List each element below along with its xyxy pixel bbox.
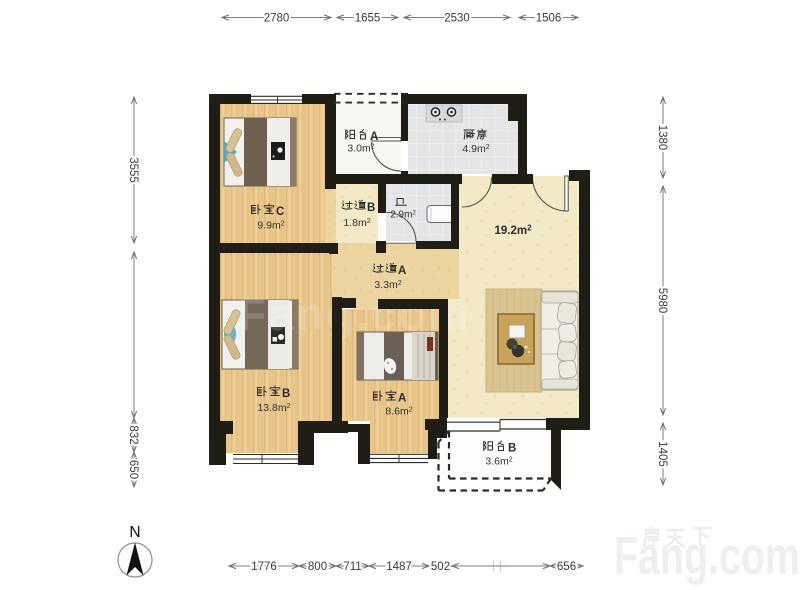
svg-text:2530: 2530 <box>444 12 470 24</box>
svg-text:1380: 1380 <box>656 125 668 151</box>
svg-text:656: 656 <box>557 561 576 573</box>
svg-text:650: 650 <box>127 460 139 479</box>
svg-text:·׀·׀·: ·׀·׀· <box>488 560 505 571</box>
svg-text:3.6m2: 3.6m2 <box>485 456 512 468</box>
svg-text:1487: 1487 <box>386 561 412 573</box>
svg-text:B: B <box>367 202 375 214</box>
svg-text:Fang.com: Fang.com <box>238 288 471 340</box>
svg-text:502: 502 <box>431 561 450 573</box>
svg-text:1776: 1776 <box>251 561 277 573</box>
svg-text:B: B <box>282 388 290 400</box>
svg-text:A: A <box>398 265 406 277</box>
svg-text:5980: 5980 <box>656 288 668 314</box>
svg-text:832: 832 <box>127 425 139 444</box>
svg-text:2780: 2780 <box>264 12 290 24</box>
svg-text:4.9m2: 4.9m2 <box>462 143 489 155</box>
svg-text:A: A <box>398 393 406 405</box>
svg-text:B: B <box>508 443 516 455</box>
svg-text:Fang.com: Fang.com <box>614 525 800 585</box>
svg-text:8.6m2: 8.6m2 <box>385 406 412 418</box>
svg-text:1655: 1655 <box>355 12 381 24</box>
svg-text:N: N <box>129 524 140 541</box>
svg-text:1.8m2: 1.8m2 <box>343 217 370 229</box>
svg-text:9.9m2: 9.9m2 <box>257 220 284 232</box>
svg-text:3555: 3555 <box>127 157 139 183</box>
svg-text:C: C <box>276 206 284 218</box>
svg-text:19.2m2: 19.2m2 <box>494 224 532 238</box>
svg-text:3.0m2: 3.0m2 <box>347 143 374 155</box>
svg-text:800: 800 <box>308 561 327 573</box>
svg-text:A: A <box>370 131 378 143</box>
svg-text:1405: 1405 <box>656 441 668 467</box>
svg-text:711: 711 <box>343 561 361 573</box>
svg-text:3.3m2: 3.3m2 <box>374 279 401 291</box>
svg-text:13.8m2: 13.8m2 <box>257 402 290 414</box>
svg-text:1506: 1506 <box>536 12 562 24</box>
